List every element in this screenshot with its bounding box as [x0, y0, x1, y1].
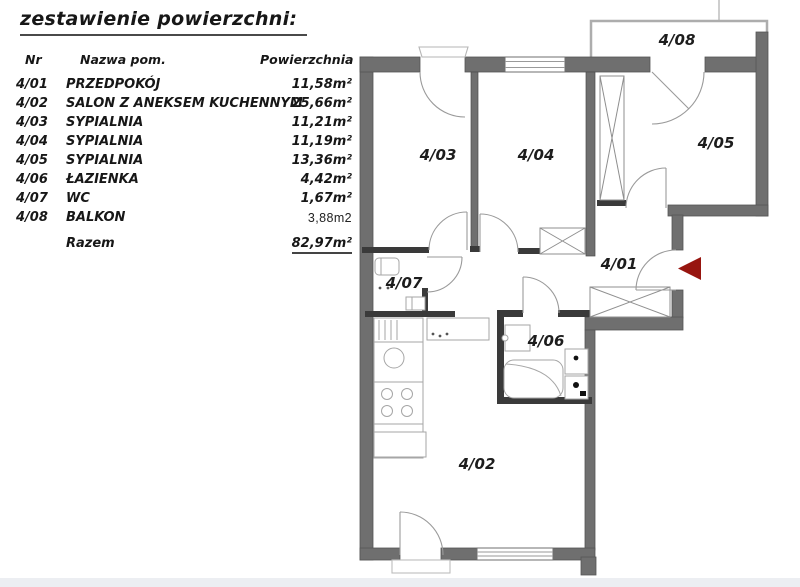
kitchen-island — [374, 432, 426, 457]
bath-toilet — [565, 349, 588, 374]
windows — [477, 57, 565, 560]
door-4-04 — [480, 214, 518, 252]
room-label-4-03: 4/03 — [419, 146, 457, 164]
door-wc — [427, 257, 462, 292]
door-4-03 — [429, 212, 467, 250]
room-label-4-08: 4/08 — [658, 31, 696, 49]
window-top — [505, 57, 565, 72]
wardrobes — [540, 76, 670, 317]
wardrobe-4-04 — [540, 228, 585, 254]
room-label-4-02: 4/02 — [458, 455, 496, 473]
door-4-08-balcony — [652, 72, 704, 124]
floor-plan-sheet: zestawienie powierzchni: Nr Nazwa pom. P… — [0, 0, 800, 587]
wc-toilet — [375, 258, 399, 275]
window-bottom — [477, 548, 553, 560]
wc-basin — [406, 297, 425, 310]
door-entrance — [636, 250, 676, 290]
shaft-box — [600, 76, 624, 200]
room-label-4-01: 4/01 — [600, 255, 638, 273]
door-4-05 — [626, 168, 666, 208]
room-label-4-07: 4/07 — [385, 274, 423, 292]
room-label-4-05: 4/05 — [697, 134, 735, 152]
bottom-strip — [0, 578, 800, 587]
bathtub — [504, 360, 563, 398]
floor-plan-drawing: 4/03 4/04 4/05 4/08 4/01 4/07 4/06 4/02 — [0, 0, 800, 587]
bath-sink — [505, 325, 530, 351]
door-4-02-balcony — [392, 512, 450, 573]
room-label-4-04: 4/04 — [517, 146, 555, 164]
kitchen-counter — [427, 318, 489, 340]
entrance-arrow-icon — [678, 257, 701, 280]
wardrobe-hall — [590, 287, 670, 317]
room-label-4-06: 4/06 — [527, 332, 565, 350]
door-4-03-window — [419, 47, 468, 117]
door-bathroom — [523, 277, 559, 313]
kitchen-fixtures — [374, 318, 489, 458]
